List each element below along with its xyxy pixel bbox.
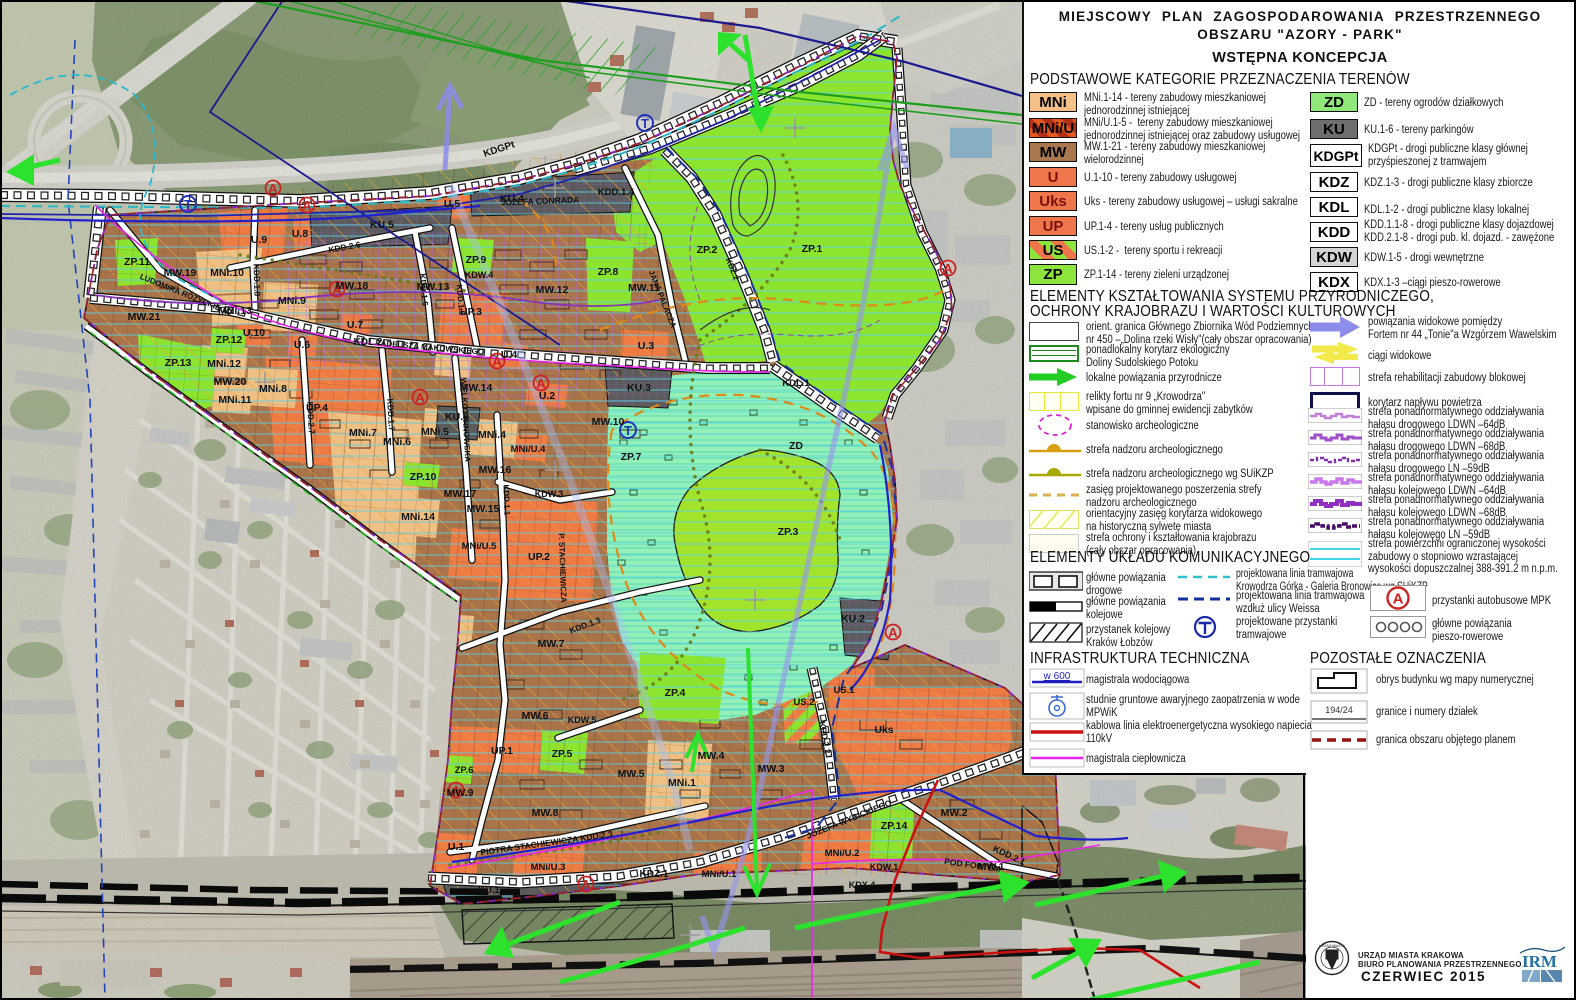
svg-text:A: A: [943, 261, 953, 276]
svg-text:A: A: [888, 625, 898, 640]
svg-text:U.7: U.7: [347, 319, 364, 331]
svg-text:U.4: U.4: [501, 349, 518, 361]
svg-text:MNi/U.2: MNi/U.2: [825, 848, 860, 859]
svg-text:MNi.4: MNi.4: [478, 429, 506, 441]
svg-text:MW.4: MW.4: [698, 750, 725, 762]
svg-text:U.9: U.9: [251, 234, 268, 246]
svg-text:194/24: 194/24: [1325, 705, 1353, 715]
svg-text:MW.15: MW.15: [467, 503, 500, 515]
svg-text:MNi/U.5: MNi/U.5: [462, 541, 498, 552]
svg-text:MNi.10: MNi.10: [210, 267, 244, 279]
svg-text:URZĄD MIASTA: URZĄD MIASTA: [1319, 944, 1345, 948]
svg-text:U.2: U.2: [539, 390, 556, 402]
svg-text:Uks: Uks: [874, 724, 893, 736]
svg-text:KU.3: KU.3: [627, 382, 651, 394]
svg-text:ZP.9: ZP.9: [466, 254, 487, 266]
svg-text:MW.6: MW.6: [522, 710, 549, 722]
svg-text:KDW.1: KDW.1: [870, 862, 899, 872]
svg-text:ZP.2: ZP.2: [697, 244, 718, 256]
svg-text:MW.2: MW.2: [941, 807, 968, 819]
svg-text:ZP.14: ZP.14: [881, 820, 908, 832]
svg-text:A: A: [536, 376, 546, 391]
svg-text:US.2: US.2: [793, 697, 814, 708]
svg-text:MNi/U.3: MNi/U.3: [531, 862, 566, 873]
svg-text:MNi.1: MNi.1: [668, 777, 696, 789]
svg-text:MNi.9: MNi.9: [278, 295, 306, 307]
svg-text:KDW.5: KDW.5: [568, 715, 597, 725]
svg-text:MW.19: MW.19: [164, 267, 197, 279]
svg-text:T: T: [641, 116, 649, 131]
svg-text:ZP.12: ZP.12: [216, 334, 243, 346]
svg-text:KDD.2.7: KDD.2.7: [305, 401, 317, 434]
svg-text:KDW.3: KDW.3: [535, 489, 564, 499]
svg-text:A: A: [302, 198, 312, 213]
svg-text:KU.2: KU.2: [841, 613, 865, 625]
svg-text:ZP.5: ZP.5: [552, 748, 573, 760]
svg-text:U.5: U.5: [444, 198, 461, 210]
svg-text:ZP.4: ZP.4: [665, 687, 686, 699]
svg-text:T: T: [624, 423, 632, 438]
svg-text:MNi.8: MNi.8: [259, 383, 287, 395]
svg-text:MW.5: MW.5: [618, 768, 645, 780]
svg-text:ZD: ZD: [789, 440, 803, 452]
svg-text:MW.16: MW.16: [479, 464, 512, 476]
svg-text:MNi.11: MNi.11: [218, 394, 251, 406]
svg-text:U.1: U.1: [448, 841, 465, 853]
svg-text:MW.20: MW.20: [214, 376, 247, 388]
svg-text:MW.12: MW.12: [536, 284, 569, 296]
svg-text:KDD.1.8: KDD.1.8: [251, 263, 262, 296]
svg-text:KU.1: KU.1: [478, 885, 500, 896]
svg-text:UP.1: UP.1: [491, 745, 513, 757]
svg-text:IRM: IRM: [1522, 952, 1557, 971]
svg-text:KDX.4: KDX.4: [849, 880, 876, 890]
svg-text:MW.8: MW.8: [532, 807, 559, 819]
svg-text:U.6: U.6: [294, 339, 311, 351]
svg-text:MNi.14: MNi.14: [401, 511, 435, 523]
svg-text:KDD.1.7: KDD.1.7: [385, 398, 397, 431]
svg-text:KDW.4: KDW.4: [465, 270, 494, 280]
svg-text:MW.17: MW.17: [444, 488, 477, 500]
svg-text:A: A: [268, 181, 278, 196]
svg-text:KDZ.1: KDZ.1: [640, 869, 669, 880]
svg-text:MW.3: MW.3: [758, 763, 785, 775]
svg-text:ZP.7: ZP.7: [621, 451, 642, 463]
svg-text:ZP.6: ZP.6: [455, 765, 474, 776]
svg-text:KDL.1: KDL.1: [782, 378, 810, 389]
svg-text:MNi.7: MNi.7: [349, 427, 377, 439]
svg-text:MNi.12: MNi.12: [207, 358, 241, 370]
svg-text:MNi.6: MNi.6: [383, 436, 411, 448]
svg-text:MW.18: MW.18: [336, 280, 369, 292]
svg-text:ZP.11: ZP.11: [124, 256, 150, 268]
svg-text:ZP.10: ZP.10: [410, 471, 437, 483]
svg-text:KDD.1.4: KDD.1.4: [598, 187, 635, 198]
svg-text:A: A: [415, 390, 425, 405]
svg-text:A: A: [581, 877, 591, 892]
svg-text:MNi/U.4: MNi/U.4: [511, 444, 547, 455]
svg-text:KDD.1.1: KDD.1.1: [501, 484, 511, 516]
svg-text:U.3: U.3: [638, 340, 655, 352]
svg-text:KU.5: KU.5: [370, 219, 394, 231]
svg-text:MNi/U.1: MNi/U.1: [702, 869, 738, 880]
svg-text:MW.10: MW.10: [592, 416, 625, 428]
svg-text:US.1: US.1: [833, 685, 855, 696]
svg-text:ZP.3: ZP.3: [778, 526, 799, 538]
svg-text:ZP.8: ZP.8: [598, 266, 619, 278]
svg-text:U.10: U.10: [243, 327, 265, 339]
svg-text:MW.21: MW.21: [128, 311, 161, 323]
svg-text:MW.9: MW.9: [447, 787, 474, 799]
svg-text:A: A: [1393, 591, 1404, 608]
svg-text:UP.2: UP.2: [528, 551, 550, 563]
svg-text:ZP.13: ZP.13: [165, 357, 192, 369]
svg-text:w 600: w 600: [1043, 671, 1071, 682]
svg-text:MW.7: MW.7: [538, 638, 565, 650]
svg-text:ZP.1: ZP.1: [802, 243, 823, 255]
svg-text:MNi.5: MNi.5: [421, 426, 449, 438]
svg-text:U.8: U.8: [292, 228, 309, 240]
svg-text:T: T: [184, 197, 192, 212]
